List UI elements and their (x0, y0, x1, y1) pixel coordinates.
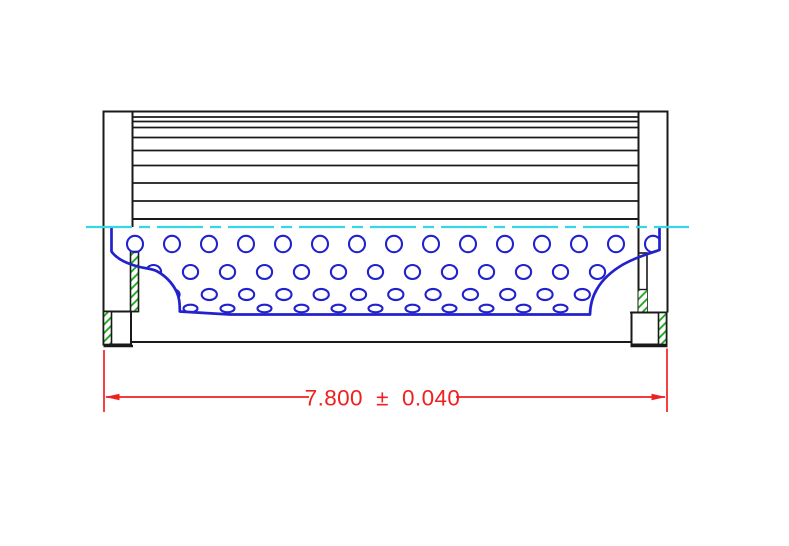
technical-drawing-canvas: 7.800 ± 0.040 (0, 0, 789, 546)
drawing-background (0, 0, 789, 546)
end-cap-right-section-hatch (639, 290, 648, 312)
end-cap-right-step-hatch (659, 313, 667, 345)
end-cap-left-step-hatch (104, 312, 112, 345)
filter-element-drawing: 7.800 ± 0.040 (0, 0, 789, 546)
end-cap-left-section-hatch (131, 252, 139, 312)
dimension-text: 7.800 ± 0.040 (305, 386, 461, 411)
